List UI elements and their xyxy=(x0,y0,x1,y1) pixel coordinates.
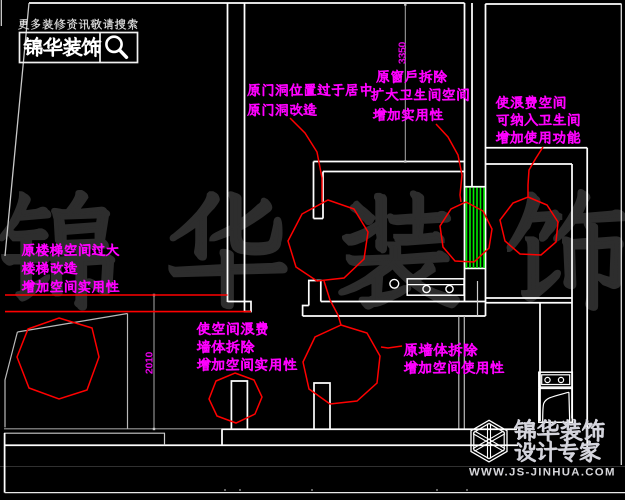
svg-text:2010: 2010 xyxy=(144,351,156,374)
svg-text:3350: 3350 xyxy=(397,41,409,64)
svg-text:WWW.JS-JINHUA.COM: WWW.JS-JINHUA.COM xyxy=(469,467,616,479)
